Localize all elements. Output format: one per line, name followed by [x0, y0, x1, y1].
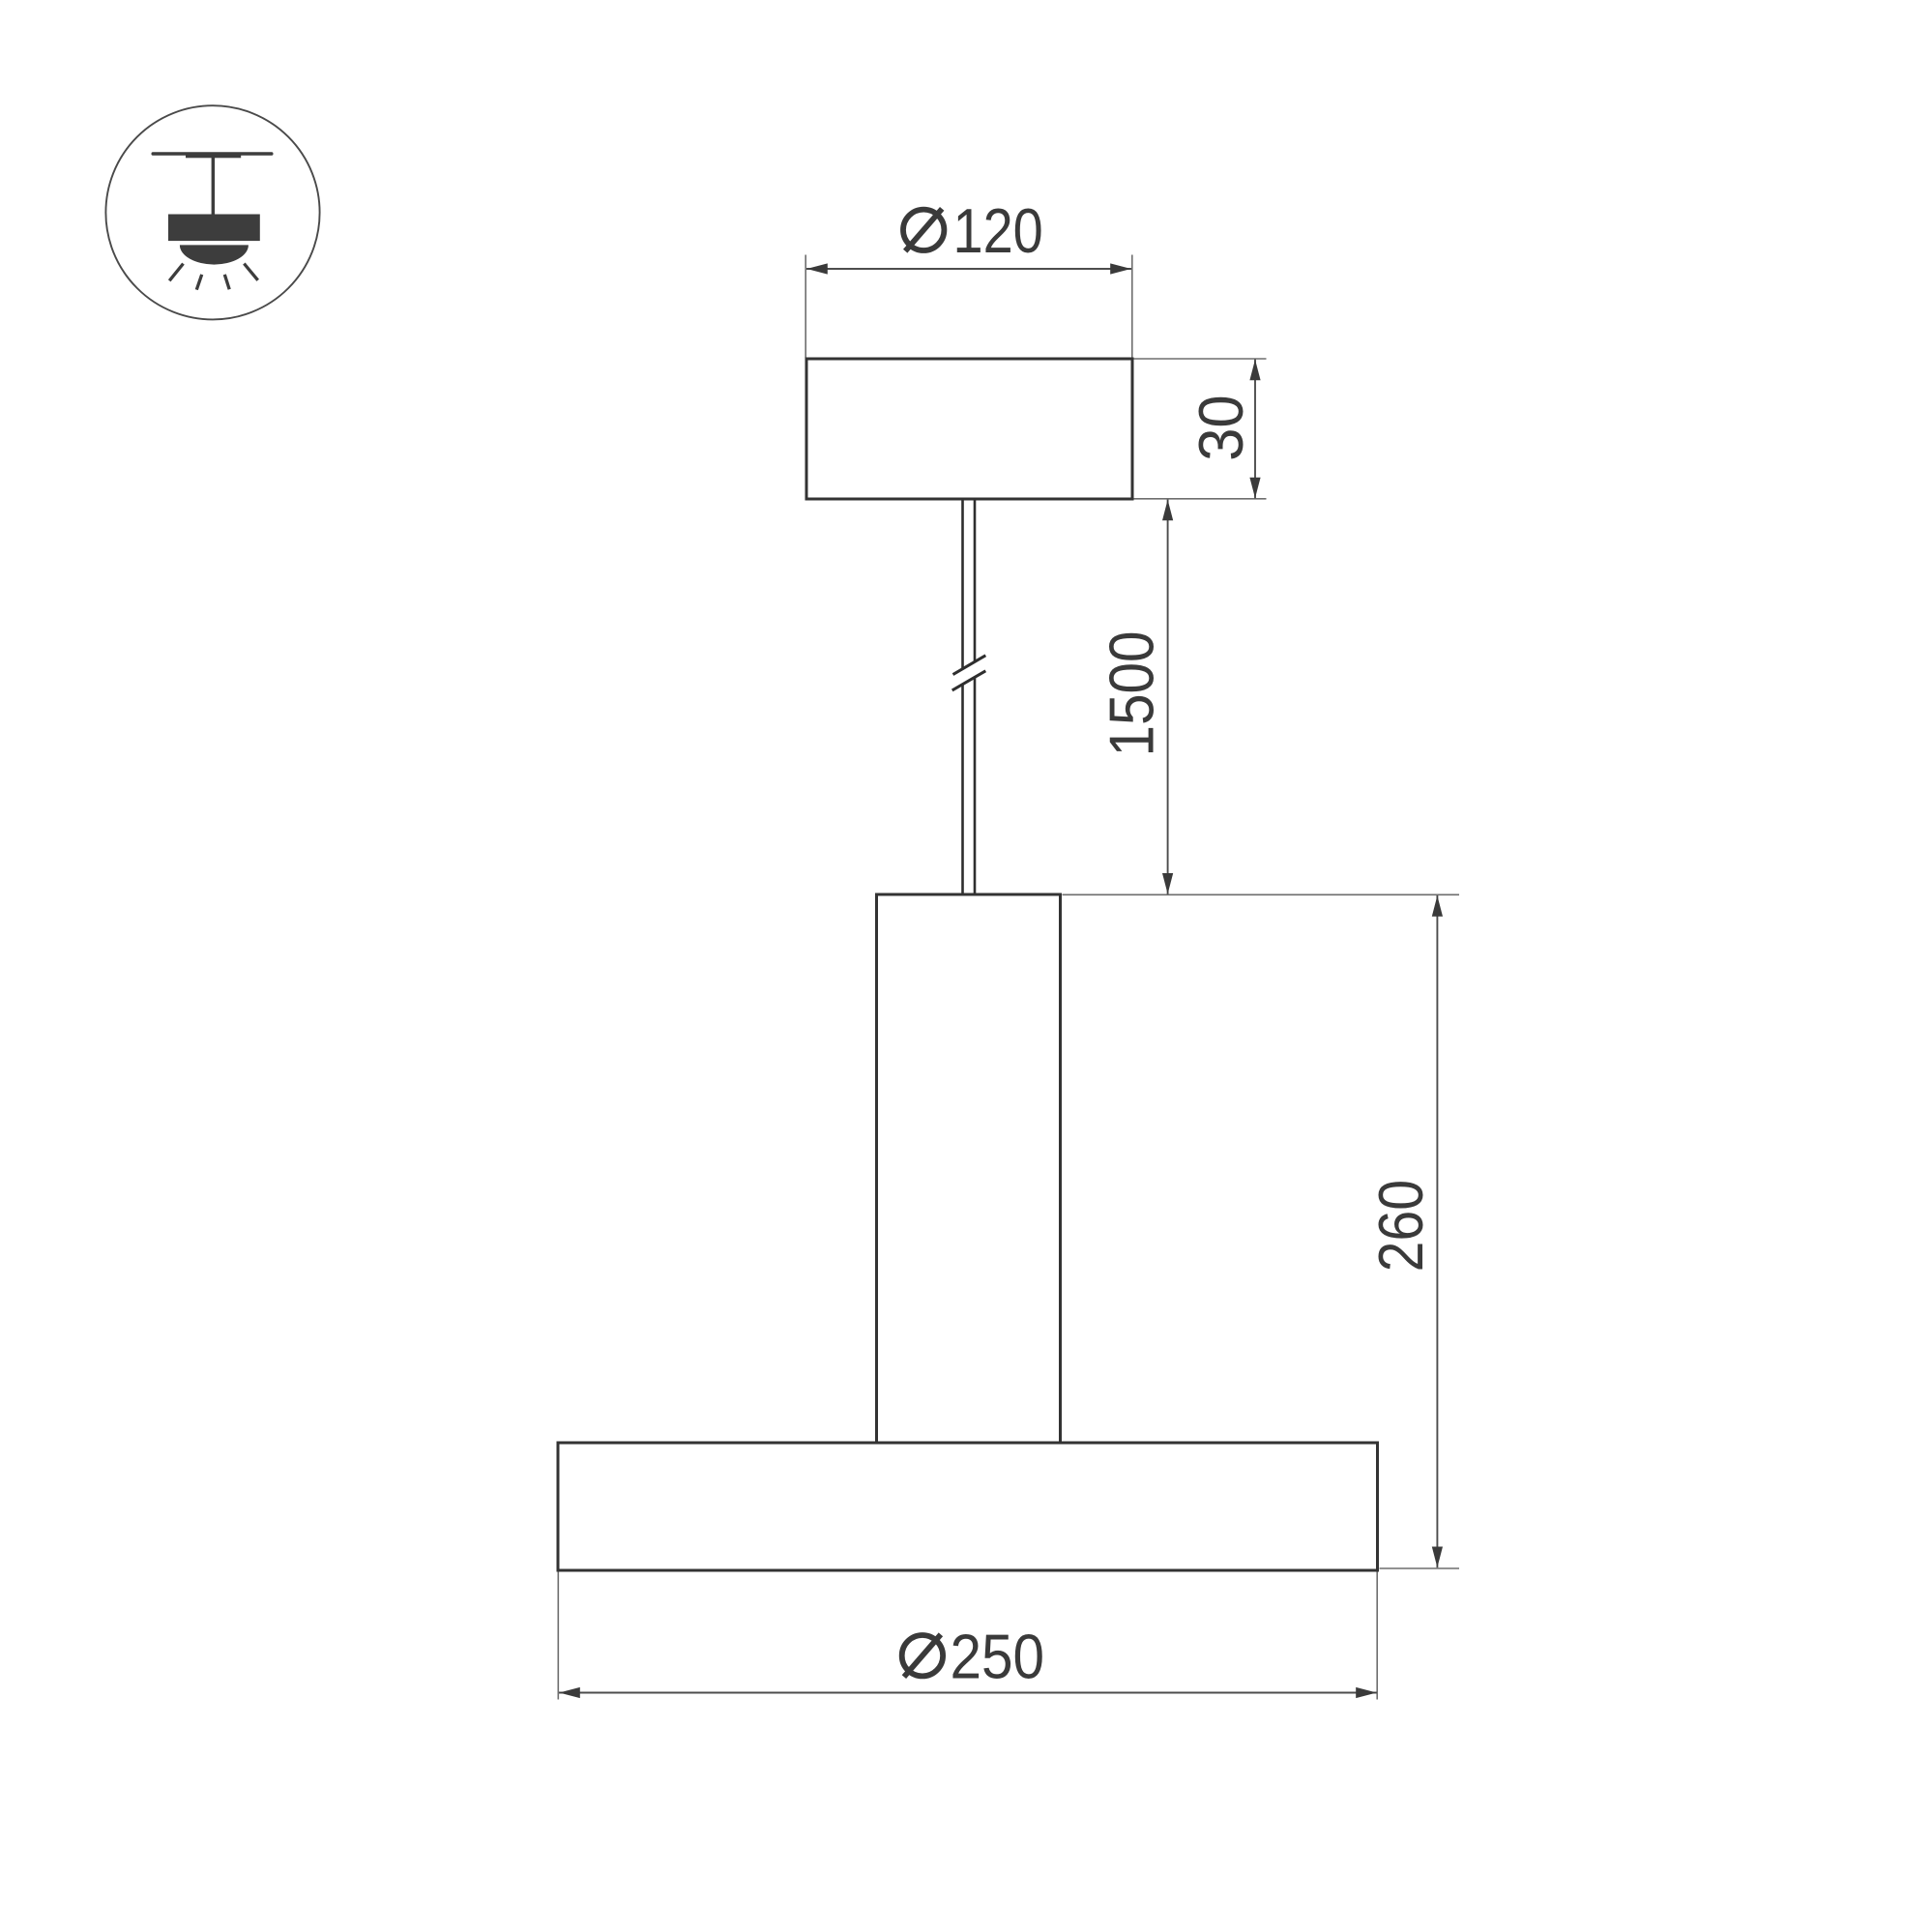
- svg-text:1500: 1500: [1097, 630, 1167, 756]
- svg-text:30: 30: [1187, 395, 1257, 461]
- svg-text:250: 250: [951, 1622, 1045, 1692]
- svg-text:260: 260: [1365, 1180, 1435, 1272]
- svg-text:120: 120: [953, 195, 1043, 266]
